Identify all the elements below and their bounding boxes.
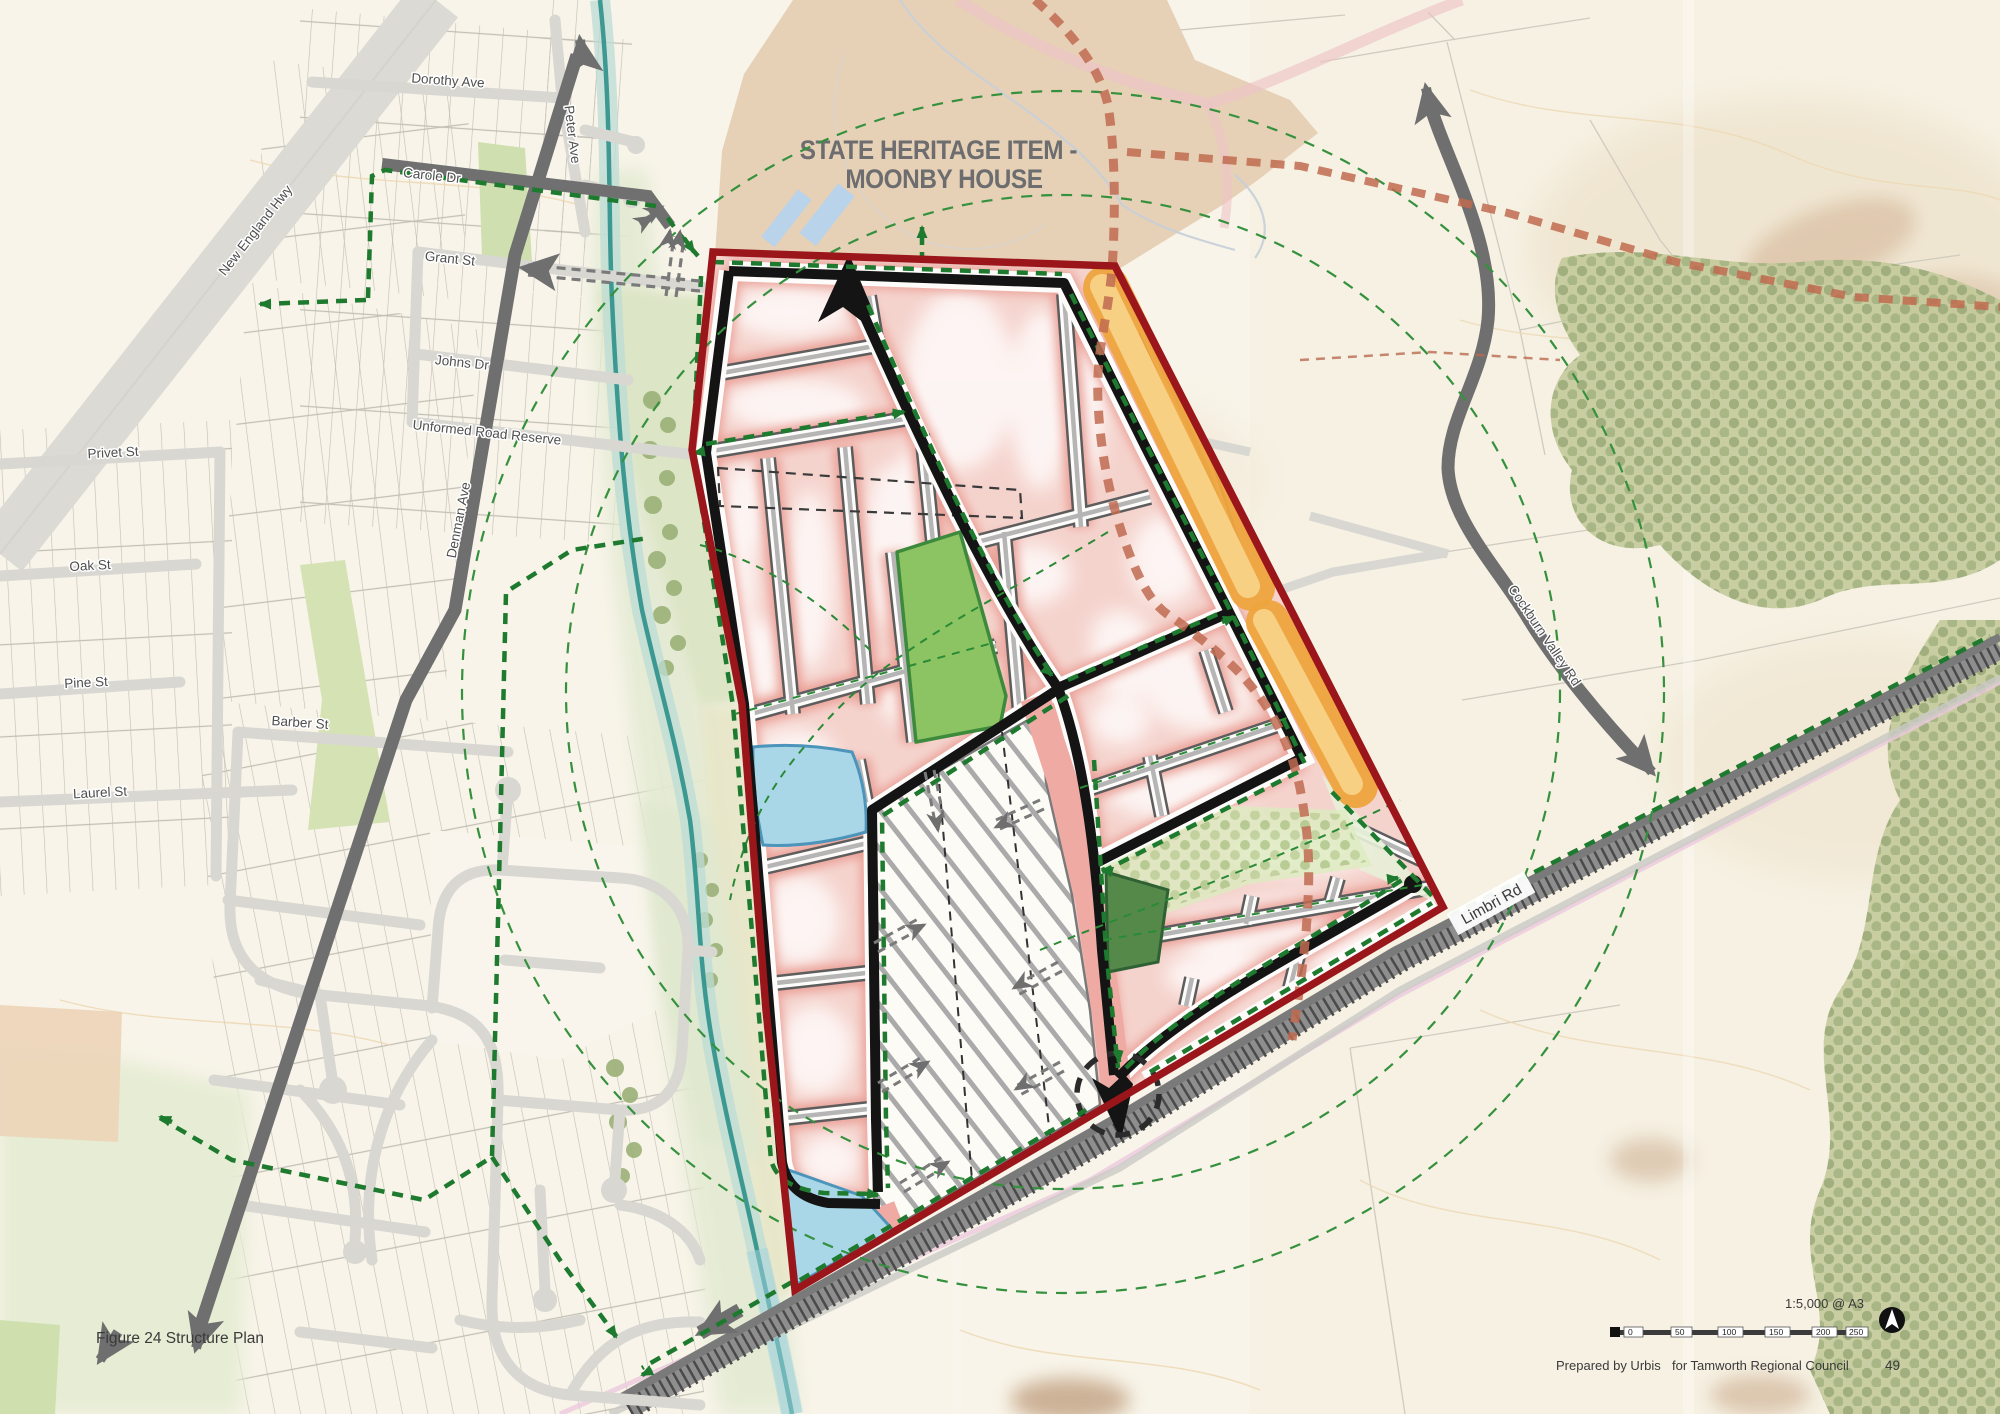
svg-text:0: 0 (1628, 1327, 1633, 1337)
svg-text:250: 250 (1849, 1327, 1863, 1337)
svg-text:STATE HERITAGE ITEM -: STATE HERITAGE ITEM - (800, 136, 1077, 165)
svg-text:Figure 24 Structure Plan: Figure 24 Structure Plan (96, 1330, 264, 1347)
svg-text:Pine St: Pine St (64, 674, 108, 691)
svg-text:Privet St: Privet St (87, 444, 139, 462)
svg-text:50: 50 (1675, 1327, 1685, 1337)
svg-text:200: 200 (1816, 1327, 1830, 1337)
svg-text:150: 150 (1769, 1327, 1783, 1337)
svg-text:MOONBY HOUSE: MOONBY HOUSE (845, 165, 1042, 194)
svg-text:1:5,000 @ A3: 1:5,000 @ A3 (1785, 1296, 1864, 1311)
svg-text:100: 100 (1722, 1327, 1736, 1337)
svg-text:for Tamworth Regional Council: for Tamworth Regional Council (1672, 1358, 1849, 1373)
svg-text:Laurel St: Laurel St (73, 784, 128, 802)
svg-text:Oak St: Oak St (69, 557, 111, 574)
svg-text:49: 49 (1885, 1358, 1900, 1373)
svg-text:Prepared by Urbis: Prepared by Urbis (1556, 1358, 1661, 1373)
